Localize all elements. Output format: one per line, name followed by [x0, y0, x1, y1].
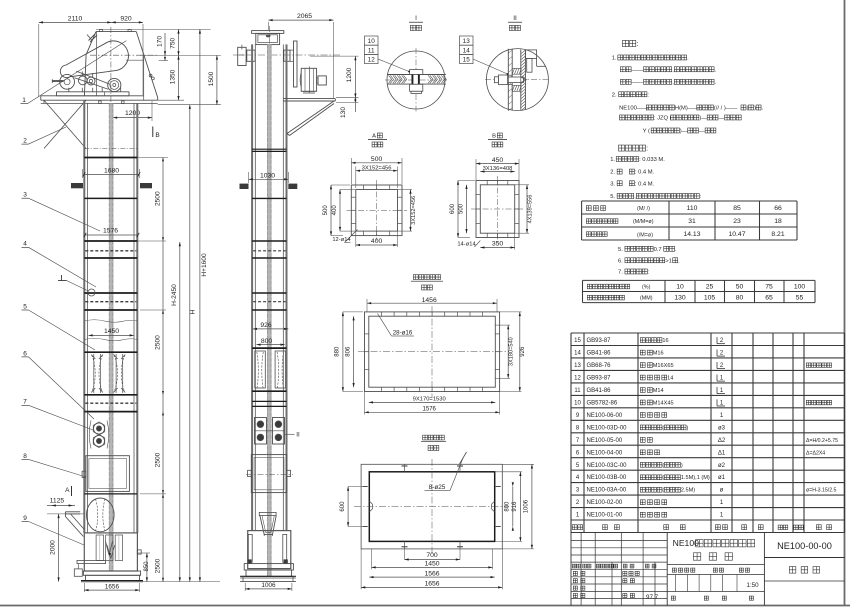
- svg-text:Δ2: Δ2: [718, 438, 726, 444]
- svg-text:920: 920: [120, 15, 132, 22]
- svg-text:: 0.4 M.: : 0.4 M.: [635, 181, 655, 187]
- svg-text:NE100-05-00: NE100-05-00: [587, 438, 623, 444]
- svg-text:14: 14: [574, 351, 581, 357]
- svg-text:1:50: 1:50: [747, 582, 760, 589]
- svg-text:800: 800: [505, 501, 511, 512]
- svg-text:400: 400: [332, 205, 338, 216]
- svg-text:80: 80: [736, 295, 744, 302]
- svg-text:(: (: [746, 106, 748, 112]
- svg-text:8.21: 8.21: [771, 231, 784, 238]
- svg-text:2500: 2500: [154, 335, 161, 350]
- svg-text:1.: 1.: [610, 157, 615, 163]
- svg-text:12-ø14: 12-ø14: [332, 237, 351, 243]
- svg-text:)—: )—: [680, 129, 688, 135]
- svg-text:(// / )——: (// / )——: [714, 106, 738, 112]
- svg-text:): ): [686, 425, 688, 431]
- svg-text:0.7: 0.7: [654, 247, 662, 253]
- svg-text:500: 500: [459, 203, 465, 214]
- svg-text:55: 55: [796, 295, 804, 302]
- svg-text:1006: 1006: [261, 582, 276, 589]
- svg-text:130: 130: [674, 295, 686, 302]
- svg-text:II: II: [296, 432, 300, 439]
- svg-text:8: 8: [23, 453, 27, 460]
- svg-text:GB5782-86: GB5782-86: [587, 400, 618, 406]
- svg-text:NE100: NE100: [673, 538, 699, 548]
- svg-text:2065: 2065: [297, 13, 312, 20]
- svg-text:ø2: ø2: [718, 463, 726, 469]
- svg-text:13: 13: [463, 38, 471, 45]
- svg-text:): ): [681, 463, 683, 469]
- svg-text:14-ø14: 14-ø14: [457, 242, 476, 248]
- svg-text:130: 130: [340, 107, 347, 118]
- svg-text:(: (: [662, 425, 664, 431]
- svg-text:926: 926: [260, 322, 272, 329]
- svg-text:25: 25: [706, 283, 714, 290]
- svg-text:: JZQ (: : JZQ (: [654, 116, 672, 122]
- svg-text:23: 23: [733, 218, 741, 225]
- svg-text:600: 600: [340, 501, 346, 512]
- svg-text:B: B: [492, 134, 496, 140]
- svg-text:1680: 1680: [104, 168, 119, 175]
- svg-text:1456: 1456: [422, 297, 437, 304]
- svg-text:A: A: [65, 487, 70, 494]
- svg-text:1125: 1125: [50, 497, 65, 504]
- svg-text:Δ=Δ2X4: Δ=Δ2X4: [806, 450, 825, 456]
- svg-text:H-2450: H-2450: [171, 284, 178, 306]
- svg-text:A: A: [372, 134, 376, 140]
- svg-text:2500: 2500: [154, 558, 161, 573]
- svg-text:NE100-02-00: NE100-02-00: [587, 500, 623, 506]
- svg-text:3: 3: [23, 192, 27, 199]
- svg-text:1656: 1656: [424, 581, 439, 588]
- svg-text:7: 7: [23, 399, 27, 406]
- svg-text:1576: 1576: [423, 407, 437, 413]
- svg-text:1: 1: [22, 97, 26, 104]
- svg-text:——: ——: [632, 67, 644, 73]
- svg-text:9: 9: [23, 515, 27, 522]
- svg-text:1566: 1566: [424, 570, 439, 577]
- svg-text:12: 12: [574, 376, 581, 382]
- svg-text:I: I: [415, 15, 417, 22]
- svg-text:1500: 1500: [208, 71, 215, 86]
- svg-text:11: 11: [368, 47, 375, 54]
- svg-text:1200: 1200: [346, 67, 353, 82]
- svg-text:50: 50: [736, 283, 744, 290]
- svg-text:)—: )—: [699, 116, 707, 122]
- svg-text:M16X65: M16X65: [653, 363, 674, 369]
- svg-text:GB41-86: GB41-86: [587, 388, 612, 394]
- svg-text:II: II: [513, 15, 517, 22]
- svg-text:16: 16: [662, 338, 668, 344]
- svg-text:8-ø25: 8-ø25: [429, 484, 446, 491]
- svg-text:1450: 1450: [104, 328, 119, 335]
- svg-text:2.: 2.: [610, 170, 615, 176]
- svg-text:10: 10: [676, 283, 684, 290]
- svg-text:—: —: [718, 116, 724, 122]
- svg-text:926: 926: [520, 346, 526, 357]
- svg-text:100: 100: [794, 283, 806, 290]
- svg-text:2500: 2500: [154, 452, 161, 467]
- svg-text:850: 850: [144, 561, 150, 572]
- svg-text:3X180=540: 3X180=540: [508, 337, 514, 366]
- svg-text:7.: 7.: [618, 270, 623, 276]
- svg-text:75: 75: [765, 283, 773, 290]
- svg-text:2500: 2500: [154, 191, 161, 206]
- svg-text:1450: 1450: [424, 561, 439, 568]
- svg-text:105: 105: [704, 295, 716, 302]
- svg-text:2000: 2000: [50, 540, 57, 555]
- svg-text:——: ——: [632, 80, 644, 86]
- svg-text:916: 916: [512, 501, 518, 512]
- svg-text:9X170=1530: 9X170=1530: [413, 397, 446, 403]
- svg-text:ø: ø: [720, 488, 724, 494]
- svg-text:H+1600: H+1600: [201, 253, 208, 277]
- svg-text:350: 350: [492, 241, 504, 248]
- svg-text:1006: 1006: [524, 499, 530, 513]
- svg-text:NE100——: NE100——: [619, 106, 649, 112]
- svg-text:ø=H-3.15/2.5: ø=H-3.15/2.5: [806, 488, 837, 494]
- svg-text:1.5M),1 (M): 1.5M),1 (M): [681, 475, 710, 481]
- svg-text:—: —: [699, 129, 705, 135]
- svg-text:): ): [754, 106, 756, 112]
- svg-text:18: 18: [774, 218, 782, 225]
- svg-text:800: 800: [261, 338, 273, 345]
- svg-text:B: B: [155, 132, 159, 139]
- svg-text:NE100-00-00: NE100-00-00: [777, 541, 832, 551]
- svg-text:2.: 2.: [612, 92, 617, 98]
- svg-text::: :: [646, 146, 648, 153]
- svg-text:Δ1: Δ1: [718, 450, 726, 456]
- svg-text:13: 13: [574, 363, 581, 369]
- svg-text:(: (: [662, 488, 664, 494]
- svg-text:31: 31: [688, 218, 696, 225]
- svg-text:NE100-06-00: NE100-06-00: [587, 413, 623, 419]
- svg-text:(: (: [662, 463, 664, 469]
- svg-text::: :: [636, 39, 638, 48]
- svg-text:10.47: 10.47: [728, 231, 745, 238]
- svg-text:110: 110: [687, 205, 698, 212]
- svg-text:ø3: ø3: [718, 425, 726, 431]
- svg-text:880: 880: [335, 346, 341, 357]
- svg-text:GB93-87: GB93-87: [587, 338, 612, 344]
- svg-text:4: 4: [23, 241, 27, 248]
- svg-text:3.: 3.: [610, 181, 615, 187]
- svg-text:H(M)——: H(M)——: [675, 106, 700, 112]
- svg-text:170: 170: [156, 36, 163, 47]
- svg-text:GB68-76: GB68-76: [587, 363, 612, 369]
- svg-text:NE100-04-00: NE100-04-00: [587, 450, 623, 456]
- svg-text:14: 14: [667, 376, 673, 382]
- svg-text:Δ=H/0.2+5.75: Δ=H/0.2+5.75: [806, 438, 838, 444]
- svg-text:GB41-86: GB41-86: [587, 351, 612, 357]
- svg-text:1030: 1030: [260, 172, 275, 179]
- svg-text:97.7: 97.7: [646, 594, 659, 601]
- svg-text:1576: 1576: [103, 228, 118, 235]
- svg-text:12: 12: [368, 57, 376, 64]
- svg-text:(M/M=ø): (M/M=ø): [633, 219, 654, 225]
- svg-text:6.: 6.: [618, 258, 623, 264]
- svg-text:65: 65: [765, 295, 773, 302]
- svg-text:NE100-03B-00: NE100-03B-00: [587, 475, 627, 481]
- svg-text:M14: M14: [653, 388, 664, 394]
- svg-text:700: 700: [426, 552, 438, 559]
- svg-text:H: H: [190, 309, 197, 314]
- svg-text:15: 15: [463, 57, 471, 64]
- svg-text:NE100-03C-00: NE100-03C-00: [587, 463, 628, 469]
- svg-text:2.5M): 2.5M): [681, 488, 695, 494]
- svg-text:15: 15: [574, 338, 581, 344]
- svg-text:5: 5: [23, 303, 27, 310]
- svg-text:GB93-87: GB93-87: [587, 376, 612, 382]
- svg-text:5.: 5.: [610, 194, 615, 200]
- svg-text:66: 66: [774, 205, 782, 212]
- svg-text:2: 2: [23, 138, 27, 145]
- svg-text:600: 600: [450, 203, 456, 214]
- svg-text:(M/ /): (M/ /): [637, 206, 650, 212]
- svg-text:2110: 2110: [68, 15, 83, 22]
- svg-text:(: (: [662, 475, 664, 481]
- svg-text:3X152=456: 3X152=456: [411, 196, 417, 225]
- svg-text:85: 85: [733, 205, 741, 212]
- svg-text:>1: >1: [665, 258, 672, 264]
- svg-text:M16: M16: [653, 351, 664, 357]
- svg-text:806: 806: [345, 346, 351, 357]
- svg-text:1656: 1656: [105, 583, 120, 590]
- svg-text:28-ø16: 28-ø16: [393, 329, 413, 336]
- svg-text:10: 10: [574, 400, 581, 406]
- svg-text:14: 14: [463, 47, 471, 54]
- svg-text:Y (: Y (: [643, 129, 650, 135]
- svg-text:(%): (%): [642, 284, 651, 290]
- svg-text:5.: 5.: [618, 247, 623, 253]
- svg-text:1350: 1350: [169, 69, 176, 84]
- svg-text:4X139=556: 4X139=556: [527, 195, 533, 224]
- svg-text:500: 500: [371, 156, 383, 163]
- svg-text:: 0.033 M.: : 0.033 M.: [639, 157, 665, 163]
- svg-text:1.: 1.: [612, 56, 617, 62]
- svg-text:10: 10: [368, 38, 376, 45]
- svg-text:NE100-01-00: NE100-01-00: [587, 513, 623, 519]
- svg-text:11: 11: [574, 388, 581, 394]
- svg-text:6: 6: [23, 350, 27, 357]
- svg-text:14.13: 14.13: [683, 231, 700, 238]
- svg-text:M14X45: M14X45: [653, 400, 674, 406]
- svg-text:750: 750: [169, 37, 176, 48]
- svg-text:: 0.4 M.: : 0.4 M.: [635, 170, 655, 176]
- svg-text:ø1: ø1: [718, 475, 726, 481]
- svg-text:450: 450: [492, 157, 504, 164]
- svg-text:400: 400: [371, 238, 383, 245]
- svg-text:NE100-03D-00: NE100-03D-00: [587, 425, 628, 431]
- svg-text:500: 500: [323, 205, 329, 216]
- svg-text:NE100-03A-00: NE100-03A-00: [587, 488, 627, 494]
- svg-text:(MM): (MM): [640, 296, 653, 302]
- svg-text:(/M=ø): (/M=ø): [637, 233, 653, 239]
